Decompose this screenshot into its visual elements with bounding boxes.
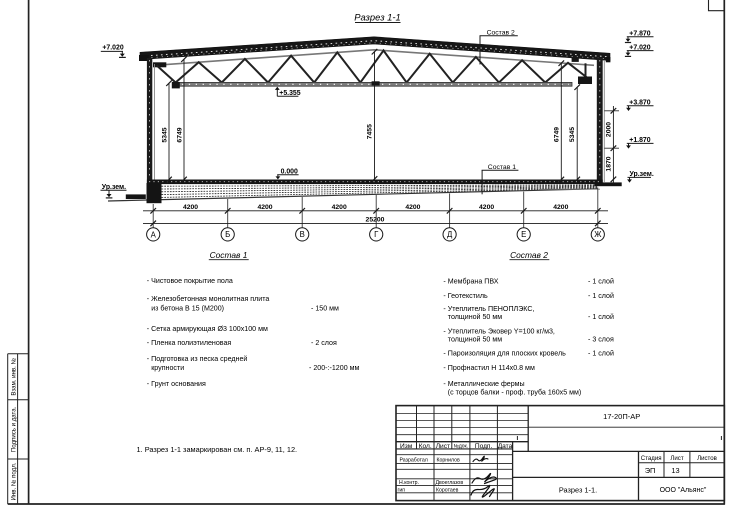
svg-text:Кол.: Кол. [419, 443, 432, 450]
svg-text:Двоеглазов: Двоеглазов [436, 480, 464, 486]
svg-text:4200: 4200 [332, 204, 347, 211]
svg-text:Корнилов: Корнилов [437, 458, 461, 464]
svg-text:- 1 слой: - 1 слой [588, 292, 614, 300]
svg-text:- Мембрана ПВХ: - Мембрана ПВХ [443, 277, 498, 285]
svg-text:№док.: №док. [453, 443, 468, 449]
svg-text:Изм: Изм [400, 443, 413, 450]
svg-text:из бетона В 15 (М200): из бетона В 15 (М200) [151, 304, 224, 312]
svg-text:+5.355: +5.355 [279, 90, 300, 97]
svg-text:+7.020: +7.020 [629, 44, 650, 51]
svg-text:Ур.зем.: Ур.зем. [630, 171, 654, 178]
svg-text:- 150 мм: - 150 мм [311, 304, 339, 312]
svg-text:- Утеплитель ПЕНОПЛЭКС,: - Утеплитель ПЕНОПЛЭКС, [443, 305, 534, 313]
svg-text:- 1 слой: - 1 слой [588, 349, 614, 357]
svg-text:Г: Г [374, 230, 379, 239]
svg-text:- Чистовое покрытие пола: - Чистовое покрытие пола [147, 277, 233, 285]
svg-text:5345: 5345 [569, 127, 576, 142]
svg-text:5345: 5345 [162, 127, 169, 142]
svg-text:- Геотекстиль: - Геотекстиль [443, 292, 488, 300]
svg-text:Коротаев: Коротаев [436, 488, 459, 494]
svg-text:+7.020: +7.020 [102, 45, 123, 52]
svg-text:Ур.зем.: Ур.зем. [102, 184, 126, 191]
svg-text:Взам. инв. №: Взам. инв. № [10, 358, 17, 396]
svg-text:Разрез 1-1.: Разрез 1-1. [559, 486, 597, 495]
svg-text:- Металлические фермы: - Металлические фермы [443, 380, 524, 388]
svg-text:1870: 1870 [605, 156, 612, 171]
svg-text:- 3 слоя: - 3 слоя [588, 336, 614, 344]
svg-text:- Грунт основания: - Грунт основания [147, 380, 206, 388]
svg-text:Е: Е [521, 230, 526, 239]
svg-text:1. Разрез 1-1 замаркирован см.: 1. Разрез 1-1 замаркирован см. п. АР-9, … [137, 445, 298, 454]
svg-text:- Профнастил Н 114x0.8 мм: - Профнастил Н 114x0.8 мм [443, 364, 535, 372]
svg-text:Н.контр.: Н.контр. [399, 480, 419, 486]
svg-text:толщиной 50 мм: толщиной 50 мм [448, 336, 502, 344]
svg-text:Разрез 1-1: Разрез 1-1 [354, 12, 400, 23]
svg-text:- Подготовка из песка средней: - Подготовка из песка средней [147, 355, 248, 363]
svg-text:Д: Д [447, 230, 453, 239]
svg-text:- 200-:-1200 мм: - 200-:-1200 мм [309, 364, 359, 372]
svg-text:Инв. № подл.: Инв. № подл. [10, 462, 17, 500]
svg-text:- Пароизоляция для плоских кро: - Пароизоляция для плоских кровель [443, 349, 566, 357]
svg-text:- Пленка полиэтиленовая: - Пленка полиэтиленовая [147, 339, 232, 347]
svg-text:4200: 4200 [183, 204, 198, 211]
svg-text:Разработал: Разработал [400, 458, 428, 464]
svg-text:толщиной 50 мм: толщиной 50 мм [448, 313, 502, 321]
svg-text:Лист: Лист [670, 455, 683, 462]
svg-text:- 1 слой: - 1 слой [588, 277, 614, 285]
svg-text:Ж: Ж [594, 230, 602, 239]
svg-text:6749: 6749 [177, 127, 184, 142]
svg-text:- Сетка армирующая Ø3 100x100: - Сетка армирующая Ø3 100x100 мм [147, 325, 268, 333]
svg-text:- Железобетонная монолитная п: - Железобетонная монолитная плита [147, 295, 270, 303]
svg-text:7455: 7455 [367, 124, 374, 139]
svg-text:- Утеплитель Эковер Y=100 кг/м: - Утеплитель Эковер Y=100 кг/м3, [443, 327, 555, 335]
svg-text:Листов: Листов [697, 455, 717, 462]
svg-text:+1.870: +1.870 [629, 137, 650, 144]
svg-text:(с торцов балки - проф. труба: (с торцов балки - проф. труба 160x5 мм) [448, 388, 581, 396]
svg-text:Б: Б [225, 230, 230, 239]
svg-text:крупности: крупности [151, 364, 184, 372]
svg-text:6749: 6749 [553, 127, 560, 142]
svg-text:0.000: 0.000 [281, 169, 298, 176]
svg-text:- 1 слой: - 1 слой [588, 313, 614, 321]
svg-text:17-20П-АР: 17-20П-АР [603, 412, 640, 421]
svg-text:Состав 2: Состав 2 [510, 250, 548, 260]
svg-text:4200: 4200 [257, 204, 272, 211]
svg-text:2000: 2000 [605, 122, 612, 137]
svg-text:А: А [151, 230, 157, 239]
svg-text:- 2 слоя: - 2 слоя [311, 339, 337, 347]
svg-text:Дата: Дата [498, 443, 513, 450]
svg-text:Состав 1: Состав 1 [210, 250, 248, 260]
svg-text:13: 13 [671, 466, 679, 475]
svg-text:ООО "Альянс": ООО "Альянс" [660, 487, 707, 494]
svg-text:В: В [300, 230, 305, 239]
svg-text:Стадия: Стадия [641, 455, 662, 462]
svg-text:+7.870: +7.870 [629, 30, 650, 37]
svg-text:гип: гип [398, 488, 406, 494]
svg-text:4200: 4200 [553, 204, 568, 211]
svg-text:4200: 4200 [479, 204, 494, 211]
svg-text:25200: 25200 [366, 217, 385, 224]
svg-text:ЭП: ЭП [645, 466, 656, 475]
svg-text:Лист: Лист [436, 443, 450, 450]
svg-text:Подпись и дата.: Подпись и дата. [10, 406, 17, 452]
svg-text:4200: 4200 [405, 204, 420, 211]
svg-text:Подп.: Подп. [475, 443, 493, 450]
svg-text:+3.870: +3.870 [629, 100, 650, 107]
